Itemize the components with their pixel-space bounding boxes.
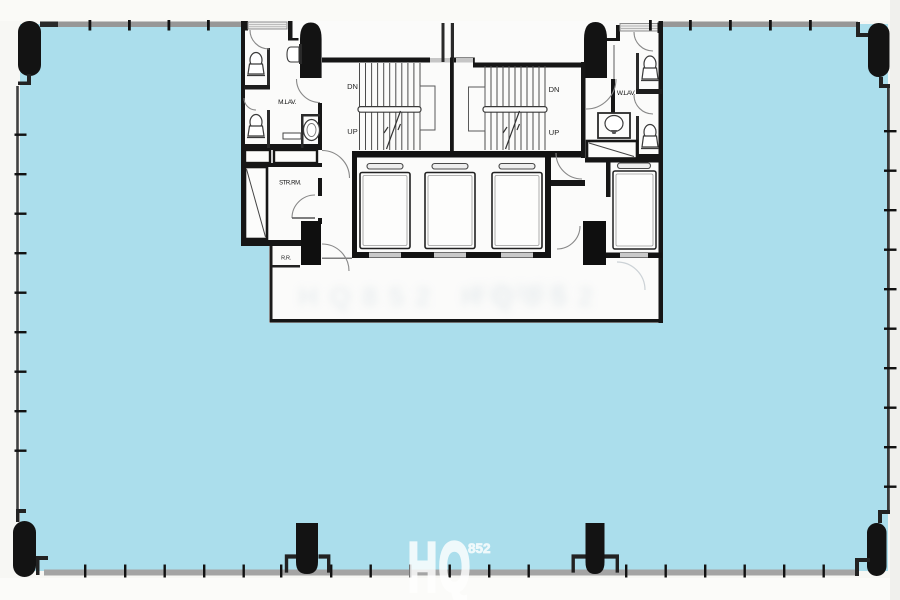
svg-text:852: 852	[468, 541, 491, 556]
svg-text:DN: DN	[347, 82, 358, 91]
svg-text:UP: UP	[549, 128, 559, 137]
svg-text:R.R.: R.R.	[281, 256, 292, 262]
svg-text:UP: UP	[347, 127, 357, 136]
svg-text:HQ: HQ	[408, 529, 472, 600]
svg-text:STR.RM.: STR.RM.	[279, 181, 302, 187]
svg-text:DN: DN	[549, 85, 560, 94]
svg-text:W.LAV.: W.LAV.	[617, 90, 636, 97]
svg-text:M.LAV.: M.LAV.	[278, 99, 296, 106]
svg-text:HQ852: HQ852	[470, 280, 570, 305]
